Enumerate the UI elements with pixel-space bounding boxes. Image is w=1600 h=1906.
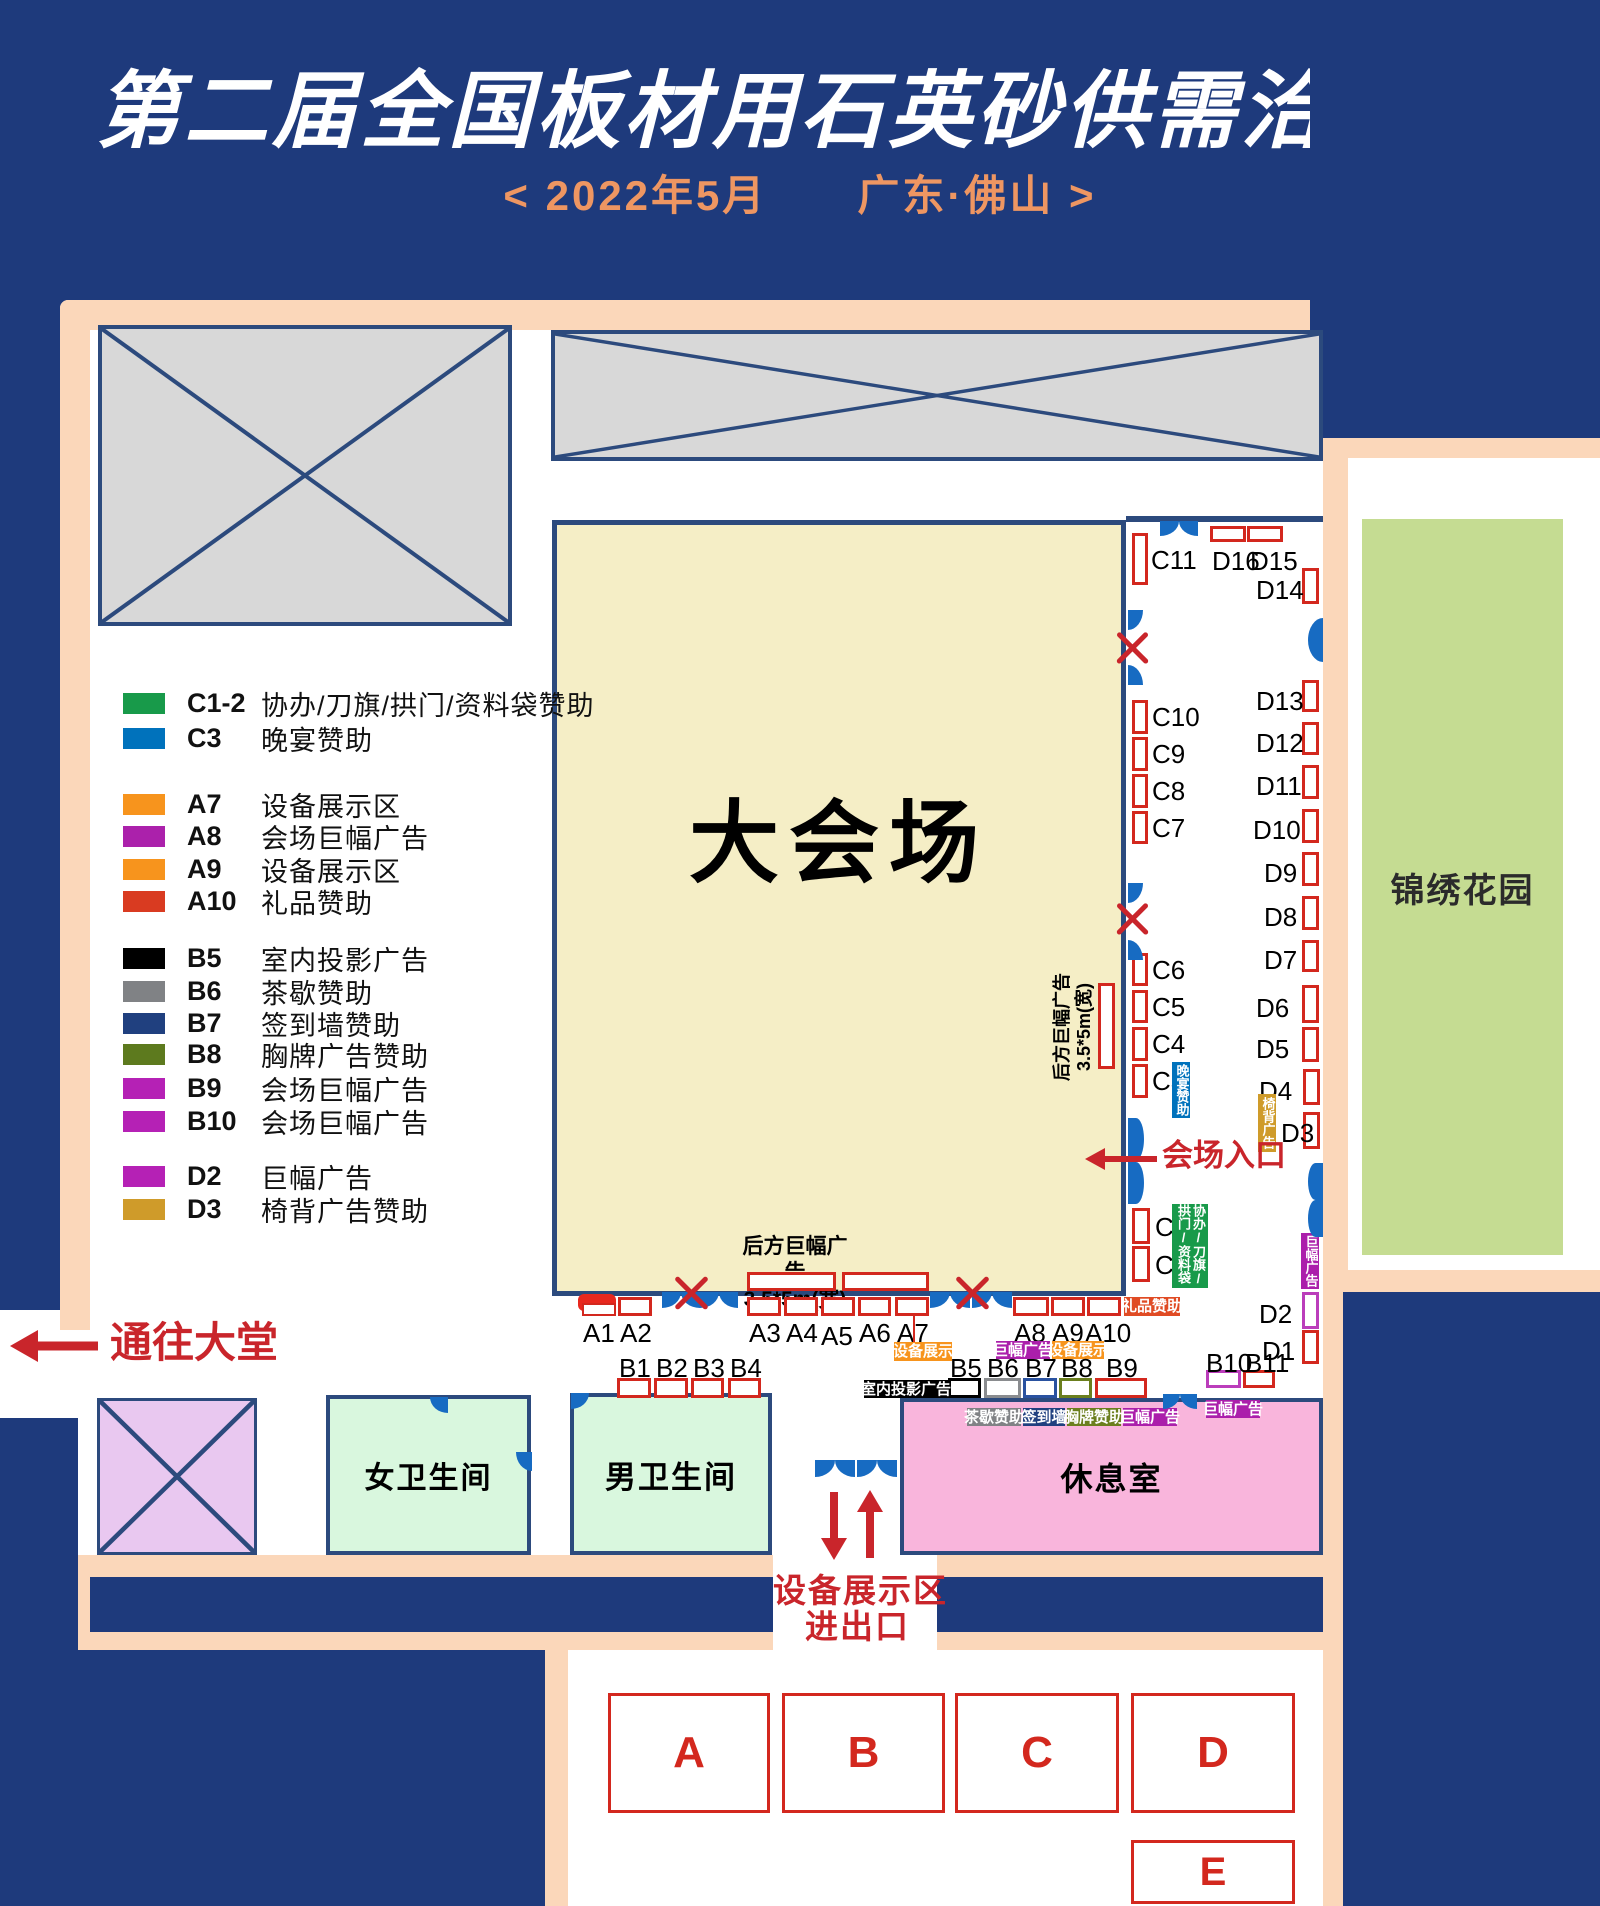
wall-garden-top	[1348, 438, 1600, 458]
booth-C2	[1132, 1208, 1150, 1244]
booth-label: D9	[1264, 860, 1297, 886]
booth-label: B8	[1061, 1355, 1093, 1381]
legend-row: B6茶歇赞助	[123, 977, 373, 1005]
booth-D14	[1302, 568, 1319, 604]
booth-label: A1	[583, 1320, 615, 1346]
booth-label: B3	[693, 1355, 725, 1381]
booth-C1	[1132, 1246, 1150, 1282]
booth-C10	[1132, 700, 1148, 734]
equipment-entry-label-2: 进出口	[805, 1610, 910, 1643]
rear-banner-right	[1098, 983, 1115, 1069]
legend-row: A9设备展示区	[123, 855, 401, 883]
legend-row: D2巨幅广告	[123, 1162, 373, 1190]
booth-D9	[1302, 852, 1319, 886]
booth-label: C10	[1152, 704, 1200, 730]
booth-label: D8	[1264, 904, 1297, 930]
zone-C: C	[955, 1693, 1119, 1813]
booth-label: D5	[1256, 1036, 1289, 1062]
tag-projection-b5: 室内投影广告	[864, 1380, 948, 1398]
booth-D15	[1247, 526, 1283, 542]
legend-swatch	[123, 826, 165, 847]
tag-signwall-b7: 签到墙	[1023, 1408, 1065, 1426]
booth-D5	[1302, 1027, 1319, 1062]
closed-door-x-icon	[953, 1274, 991, 1312]
to-lobby-arrow-icon	[10, 1328, 100, 1364]
tag-equip-a7: 设备展示	[894, 1342, 952, 1361]
wall-equipment-left	[545, 1650, 568, 1906]
booth-label: A5	[821, 1323, 853, 1349]
legend-swatch	[123, 891, 165, 912]
room-women-wc-label: 女卫生间	[365, 1453, 493, 1497]
wall-inlay-bottom	[90, 1577, 1323, 1632]
legend-swatch	[123, 948, 165, 969]
tag-banner-d2: 巨幅广告	[1301, 1233, 1319, 1289]
booth-label: A6	[859, 1320, 891, 1346]
legend-swatch	[123, 693, 165, 714]
booth-label: D14	[1256, 577, 1304, 603]
legend-row: B9会场巨幅广告	[123, 1074, 429, 1102]
outside-bottom-right	[1343, 1292, 1600, 1906]
tag-gift-a10: 礼品赞助	[1124, 1297, 1180, 1316]
booth-label: B4	[730, 1355, 762, 1381]
rear-banner-bottom-1	[747, 1272, 836, 1291]
room-women-wc: 女卫生间	[326, 1395, 531, 1555]
booth-A10	[1087, 1297, 1121, 1316]
outside-bottom-left	[0, 1650, 545, 1906]
zone-B: B	[782, 1693, 945, 1813]
legend-row: A10礼品赞助	[123, 887, 373, 915]
booth-D16	[1210, 526, 1246, 542]
closed-door-x-icon	[1113, 901, 1149, 937]
entrance-label: 会场入口	[1162, 1140, 1286, 1171]
closed-door-x-icon	[672, 1274, 710, 1312]
legend-swatch	[123, 859, 165, 880]
zone-A: A	[608, 1693, 770, 1813]
booth-A4	[784, 1297, 818, 1316]
booth-label: B7	[1025, 1355, 1057, 1381]
legend-swatch	[123, 1044, 165, 1065]
booth-D8	[1302, 896, 1319, 930]
booth-A6	[858, 1297, 891, 1316]
booth-D6	[1302, 985, 1319, 1023]
booth-label: B1	[619, 1355, 651, 1381]
closed-door-x-icon	[1113, 630, 1149, 666]
legend-row: B7签到墙赞助	[123, 1009, 401, 1037]
booth-label: C7	[1152, 815, 1185, 841]
booth-label: C5	[1152, 994, 1185, 1020]
booth-D1	[1302, 1330, 1319, 1364]
booth-C9	[1132, 737, 1148, 771]
legend-swatch	[123, 1199, 165, 1220]
booth-C8	[1132, 774, 1148, 808]
booth-label: C6	[1152, 957, 1185, 983]
zone-D: D	[1131, 1693, 1295, 1813]
room-men-wc: 男卫生间	[570, 1393, 772, 1555]
garden: 锦绣花园	[1362, 519, 1563, 1255]
booth-label: B6	[987, 1355, 1019, 1381]
zone-E: E	[1131, 1840, 1295, 1904]
booth-label: C8	[1152, 778, 1185, 804]
booth-A5	[821, 1297, 855, 1316]
rear-banner-bottom-2	[842, 1272, 929, 1291]
corridor-top-wall	[1126, 516, 1323, 522]
booth-label: A3	[749, 1320, 781, 1346]
tag-coop-c1c2: 协办/刀旗/拱门/资料袋	[1172, 1204, 1208, 1288]
booth-C11	[1132, 533, 1148, 585]
legend-row: C1-2协办/刀旗/拱门/资料袋赞助	[123, 689, 595, 717]
door-icon	[1308, 1163, 1323, 1200]
booth-A3	[747, 1297, 781, 1316]
booth-C7	[1132, 811, 1148, 844]
to-lobby-label: 通往大堂	[110, 1322, 278, 1364]
outside-top-right	[1310, 0, 1600, 438]
booth-label: D1	[1262, 1338, 1295, 1364]
booth-label: B5	[950, 1355, 982, 1381]
tag-tea-b6: 茶歇赞助	[967, 1408, 1021, 1426]
equipment-entry-label-1: 设备展示区	[773, 1574, 948, 1607]
structure-box-left	[98, 325, 512, 626]
booth-label: A2	[620, 1320, 652, 1346]
booth-A1-frame	[582, 1303, 616, 1316]
room-men-wc-label: 男卫生间	[605, 1452, 737, 1497]
legend-row: A8会场巨幅广告	[123, 822, 429, 850]
booth-label: D7	[1264, 947, 1297, 973]
equipment-entry-arrows-icon	[818, 1490, 890, 1560]
booth-C4	[1132, 1027, 1148, 1061]
booth-C3	[1132, 1064, 1148, 1098]
booth-label: D12	[1256, 730, 1304, 756]
booth-label: D10	[1253, 817, 1301, 843]
outside-left-block	[0, 1418, 78, 1650]
legend-row: B5室内投影广告	[123, 944, 429, 972]
legend-row: D3椅背广告赞助	[123, 1195, 429, 1223]
legend-swatch	[123, 728, 165, 749]
legend-swatch	[123, 1078, 165, 1099]
booth-C5	[1132, 990, 1148, 1023]
tag-badge-b8: 胸牌赞助	[1067, 1408, 1121, 1426]
entrance-arrow-icon	[1085, 1147, 1157, 1171]
booth-label: C4	[1152, 1031, 1185, 1057]
legend-row: B8胸牌广告赞助	[123, 1040, 429, 1068]
a7-tag-connector	[913, 1316, 915, 1344]
structure-box-top	[551, 330, 1323, 461]
room-lounge-label: 休息室	[1060, 1454, 1162, 1500]
main-hall	[552, 520, 1126, 1296]
booth-label: D13	[1256, 688, 1304, 714]
legend-swatch	[123, 1013, 165, 1034]
booth-label: B2	[656, 1355, 688, 1381]
booth-A7	[895, 1297, 929, 1316]
legend-row: A7设备展示区	[123, 790, 401, 818]
structure-box-lobby	[97, 1398, 257, 1555]
booth-D12	[1302, 722, 1319, 755]
legend-swatch	[123, 794, 165, 815]
booth-D4	[1303, 1069, 1320, 1105]
booth-A2	[618, 1297, 652, 1316]
door-icon	[1308, 1200, 1323, 1237]
booth-label: B9	[1106, 1355, 1138, 1381]
wall-left	[60, 300, 90, 1330]
booth-label: A4	[786, 1320, 818, 1346]
garden-label: 锦绣花园	[1391, 863, 1535, 912]
tag-banner-b10: 巨幅广告	[1206, 1400, 1260, 1418]
booth-A8	[1013, 1297, 1049, 1316]
booth-D2	[1302, 1292, 1319, 1329]
booth-D7	[1302, 940, 1319, 972]
booth-D13	[1302, 680, 1319, 712]
tag-banner-b9: 巨幅广告	[1123, 1408, 1177, 1426]
wall-garden-bottom	[1348, 1270, 1600, 1292]
booth-D11	[1302, 765, 1319, 799]
booth-label: D6	[1256, 995, 1289, 1021]
legend-row: B10会场巨幅广告	[123, 1107, 429, 1135]
booth-label: D15	[1250, 548, 1298, 574]
booth-label: D11	[1256, 773, 1302, 799]
legend-swatch	[123, 981, 165, 1002]
booth-label: C9	[1152, 741, 1185, 767]
rear-banner-right-label: 后方巨幅广告3.5*5m(宽)	[1052, 962, 1098, 1092]
booth-label: C11	[1151, 547, 1197, 573]
legend-swatch	[123, 1111, 165, 1132]
main-hall-label: 大会场	[552, 770, 1126, 900]
booth-label: D2	[1259, 1301, 1292, 1327]
booth-A9	[1051, 1297, 1085, 1316]
tag-dinner-c3: 晚宴赞助	[1172, 1062, 1190, 1118]
legend-swatch	[123, 1166, 165, 1187]
booth-D10	[1302, 809, 1319, 843]
legend-row: C3晚宴赞助	[123, 724, 373, 752]
floor-plan-poster: 第二届全国板材用石英砂供需洽谈会 < 2022年5月 广东·佛山 > 大会场 后…	[0, 0, 1600, 1906]
